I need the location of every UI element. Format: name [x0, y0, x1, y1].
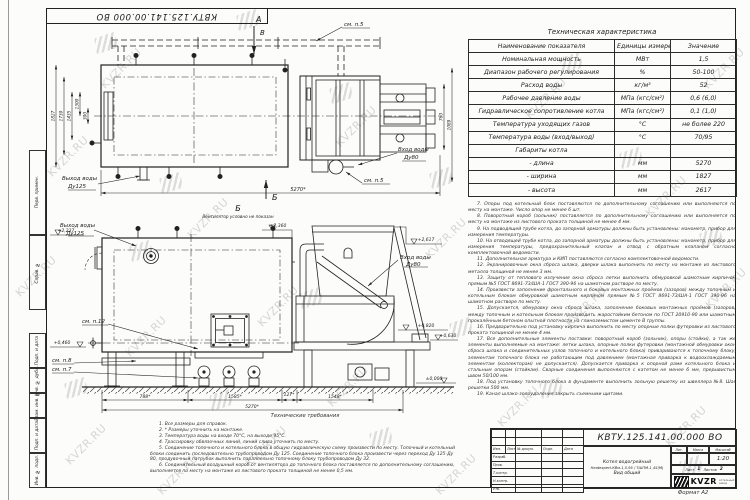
col-sign: Подп. — [542, 445, 563, 453]
spec-cell: 0,6 (6,0) — [671, 92, 737, 105]
dim-label: 300 — [83, 112, 88, 120]
doc-number: КВТУ.125.141.00.000 ВО — [583, 429, 737, 446]
role-row: Пров. — [492, 461, 584, 469]
company-logo-cell: KVZR котельный завод — [671, 474, 737, 489]
grid-header-row: Изм. Лист № докум. Подп. Дата — [492, 445, 584, 453]
spec-cell: 0,1 (1,0) — [671, 105, 737, 118]
water-inlet-label: Вход воды — [400, 255, 431, 261]
kvzr-logo-caption: котельный завод — [719, 479, 734, 485]
spec-header: Единицы измерения — [615, 40, 671, 53]
furnace-and-hopper — [292, 226, 430, 387]
see-note5-label: см. п.5 — [364, 178, 384, 184]
leader-lines-plan — [68, 27, 426, 190]
spec-cell: Габариты котла — [469, 144, 615, 157]
role-row: Разраб. — [492, 453, 584, 461]
spec-cell: % — [615, 66, 671, 79]
table-row: Диапазон рабочего регулирования%50-100 — [469, 66, 737, 79]
table-row: Номинальная мощностьМВт1,5 — [469, 53, 737, 66]
dimension-lines-plan — [56, 65, 452, 196]
elevation-label: +0,820 — [418, 323, 435, 329]
spec-cell: Температура уходящих газов — [469, 118, 615, 131]
format-note: Формат А2 — [650, 490, 736, 496]
col-date: Дата — [563, 445, 584, 453]
note-item: 13. Защиту от теплового излучения окна с… — [468, 276, 736, 288]
elevation-label: +2,237 — [58, 228, 75, 234]
note-item: 5. Соединение топочного и котельного бло… — [150, 446, 460, 464]
dim-label: 1730 — [59, 110, 64, 121]
note-item: 15. Допускается, обмуровку окна сброса ш… — [468, 306, 736, 324]
note-item: 9. На подводящей трубе котла, до запорно… — [468, 227, 736, 239]
spec-cell: °С — [615, 118, 671, 131]
margin-label: Подп. и дата — [35, 336, 40, 365]
margin-box: Справ. № — [29, 235, 46, 310]
note-item: 10. На отводящей трубе котла, до запорно… — [468, 239, 736, 257]
role-row: Т.контр. — [492, 469, 584, 477]
role-label: Т.контр. — [492, 469, 516, 477]
dim-label: 127* — [284, 392, 296, 398]
dim-label: 1548* — [328, 394, 342, 400]
spec-cell: кг/м³ — [615, 79, 671, 92]
spec-cell: мм — [615, 157, 671, 170]
mass-value — [687, 453, 709, 465]
spec-cell: °С — [615, 131, 671, 144]
spec-header: Наименование показателя — [469, 40, 615, 53]
section-label-v: В — [260, 29, 265, 37]
technical-requirements-title: Технические требования — [150, 413, 460, 420]
table-row: - длинамм5270 — [469, 157, 737, 170]
margin-label: Справ. № — [35, 262, 40, 283]
boiler-block-side — [85, 234, 300, 356]
note-item: 8. Поворотный короб (зольник) поставляет… — [468, 214, 736, 226]
note-item: 12. Экранировочные окна сброса шлака, дв… — [468, 263, 736, 275]
change-row — [492, 437, 584, 445]
sheet-value: 1 — [697, 467, 700, 472]
spec-cell: 52 — [671, 79, 737, 92]
see-note8-label: см. п.8 — [52, 358, 72, 364]
product-name: Котел водогрейный — [603, 460, 651, 465]
note-item: 7. Опоры под котельный блок поставляются… — [468, 202, 736, 214]
sheet-label: Лист — [685, 468, 694, 472]
margin-label: Перв. примен. — [35, 176, 40, 208]
margin-box: Инв. № дубл. — [29, 368, 46, 393]
role-row: Утв. — [492, 485, 584, 493]
note-item: 17. Все дополнительные элементы поставки… — [468, 337, 736, 380]
product-name-cell: Котел водогрейный Heatexpert-КВм-1,5-95 … — [583, 446, 671, 489]
boiler-door — [211, 314, 249, 347]
dim-label: 760 — [439, 113, 444, 121]
sheets-label: Листов — [703, 468, 716, 472]
margin-box: Взам. инв. № — [29, 393, 46, 418]
title-block-signature-grid: Изм. Лист № докум. Подп. Дата Разраб. Пр… — [491, 429, 584, 493]
dim-label: 1435 — [67, 110, 72, 121]
see-note12-label: см. п.12 — [82, 319, 106, 325]
role-label: Разраб. — [492, 453, 516, 461]
spec-cell: МВт — [615, 53, 671, 66]
spec-cell: Гидравлическое сопротивление котла — [469, 105, 615, 118]
elevation-label: +0,630 — [440, 333, 457, 339]
water-inlet-label: Вход воды — [398, 147, 429, 153]
spec-cell — [615, 144, 671, 157]
spec-cell: МПа (кгс/см²) — [615, 105, 671, 118]
table-row: - ширинамм1827 — [469, 170, 737, 183]
spec-cell: мм — [615, 170, 671, 183]
dim-label: 1585* — [228, 394, 242, 400]
spec-cell: не более 220 — [671, 118, 737, 131]
kvzr-logo-text: KVZR — [691, 477, 717, 486]
view-title: Б — [235, 204, 241, 213]
margin-box: Подп. и дата — [29, 418, 46, 453]
table-row: Температура воды (вход/выход)°С70/95 — [469, 131, 737, 144]
valves-side — [136, 226, 275, 238]
spec-cell: Рабочее давление воды — [469, 92, 615, 105]
dim-label: 1089 — [447, 119, 452, 130]
view-subtitle: Вентилятор условно не показан — [202, 214, 273, 219]
col-doc: № докум. — [516, 445, 542, 453]
dim-label-length: 5270* — [290, 187, 306, 193]
supports-side — [102, 352, 263, 386]
spec-table-title: Техническая характеристика — [468, 28, 736, 36]
elevation-label: +2,360 — [270, 223, 287, 229]
spec-table: Наименование показателяЕдиницы измерения… — [468, 39, 737, 197]
see-note5-label: см. п.5 — [344, 22, 364, 28]
table-row: Температура уходящих газов°Сне более 220 — [469, 118, 737, 131]
margin-label: Подп. и дата — [35, 421, 40, 450]
note-item: 18. Под установку топочного блока в фунд… — [468, 380, 736, 392]
margin-label: Взам. инв. № — [35, 391, 40, 421]
spec-cell: Номинальная мощность — [469, 53, 615, 66]
note-item: 16. Предварительно под установку кирпича… — [468, 325, 736, 337]
dim-label: 788* — [140, 394, 152, 400]
table-header-row: Наименование показателяЕдиницы измерения… — [469, 40, 737, 53]
elevation-marks — [50, 225, 458, 383]
col-list: Лист — [506, 445, 516, 453]
stoker-assembly-plan — [380, 84, 435, 152]
furnace-block-plan — [300, 76, 380, 160]
spec-cell: Диапазон рабочего регулирования — [469, 66, 615, 79]
spec-cell: Расход воды — [469, 79, 615, 92]
spec-cell: 50-100 — [671, 66, 737, 79]
note-item: 6. Соединительный воздушный короб от вен… — [150, 463, 460, 475]
water-outlet-size: Ду125 — [67, 184, 87, 190]
spec-cell: - высота — [469, 184, 615, 197]
table-row: Габариты котла — [469, 144, 737, 157]
view-name: Вид общий — [614, 471, 641, 476]
table-row: Рабочее давление водыМПа (кгс/см²)0,6 (6… — [469, 92, 737, 105]
dim-label: 1827 — [51, 110, 56, 121]
role-label: Н.контр. — [492, 477, 516, 485]
spec-cell: - длина — [469, 157, 615, 170]
product-model: Heatexpert-КВм-1,5-95 / ТШПМ-1,45(М) — [591, 466, 664, 470]
spec-cell: 2617 — [671, 184, 737, 197]
water-inlet-size: Ду80 — [403, 155, 419, 161]
water-inlet-size: Ду80 — [405, 262, 421, 268]
air-duct-lines — [112, 40, 380, 76]
spec-cell: 1827 — [671, 170, 737, 183]
table-row: Гидравлическое сопротивление котлаМПа (к… — [469, 105, 737, 118]
scale-value: 1:20 — [709, 453, 737, 465]
spec-cell: МПа (кгс/см²) — [615, 92, 671, 105]
role-label: Пров. — [492, 461, 516, 469]
spec-cell: 70/95 — [671, 131, 737, 144]
spec-cell — [671, 144, 737, 157]
see-note7-label: см. п.7 — [52, 367, 72, 373]
spec-cell: 5270 — [671, 157, 737, 170]
table-row: - высотамм2617 — [469, 184, 737, 197]
col-izm: Изм. — [492, 445, 506, 453]
spec-cell: - ширина — [469, 170, 615, 183]
spec-header: Значение — [671, 40, 737, 53]
mass-header: Масса — [687, 446, 709, 453]
role-label: Утв. — [492, 485, 516, 493]
margin-label: Инв. № подл. — [35, 455, 40, 485]
dim-label-total: 5270* — [245, 404, 259, 410]
paper-edge — [8, 0, 9, 500]
margin-box: Подп. и дата — [29, 333, 46, 368]
spec-cell: Температура воды (вход/выход) — [469, 131, 615, 144]
change-row — [492, 430, 584, 438]
sheet-count-cell: Лист 1 Листов 2 — [671, 465, 737, 474]
margin-box: Инв. № подл. — [29, 453, 46, 488]
drawing-sheet: KVZR.RU KVZR.RU KVZR.RU KVZR.RU KVZR.RU … — [0, 0, 750, 500]
title-block: Изм. Лист № докум. Подп. Дата Разраб. Пр… — [490, 428, 736, 488]
water-outlet-label: Выход воды — [62, 176, 98, 182]
scale-header: Масштаб — [709, 446, 737, 453]
section-arrows — [254, 26, 266, 199]
table-row: Расход водыкг/м³52 — [469, 79, 737, 92]
spec-cell: 1,5 — [671, 53, 737, 66]
technical-requirements: Технические требования 1. Все размеры дл… — [150, 413, 460, 475]
section-label-a: А — [255, 15, 261, 24]
note-item: 14. Произвести заполнение фронтального и… — [468, 288, 736, 306]
elevation-label: +2,617 — [418, 237, 435, 243]
spec-cell: мм — [615, 184, 671, 197]
lit-header: Лит. — [671, 446, 687, 453]
plan-view-drawing: А В Б см. п.5 см. п.5 Вход воды Ду80 Вых… — [48, 10, 460, 202]
margin-box: Перв. примен. — [29, 150, 46, 235]
installation-notes: 7. Опоры под котельный блок поставляются… — [468, 202, 736, 399]
side-view-drawing: Б Вентилятор условно не показан Выход во… — [48, 200, 460, 430]
sheets-value: 2 — [720, 467, 723, 472]
elevation-label: ±0,000 — [426, 376, 443, 382]
role-row: Н.контр. — [492, 477, 584, 485]
dim-label: 1300 — [75, 98, 80, 109]
kvzr-logo-icon — [674, 476, 689, 488]
note-item: 19. Канал шлако-золоудаления закрыть съе… — [468, 392, 736, 398]
elevation-label: +0,460 — [54, 340, 71, 346]
lit-value — [671, 453, 687, 465]
